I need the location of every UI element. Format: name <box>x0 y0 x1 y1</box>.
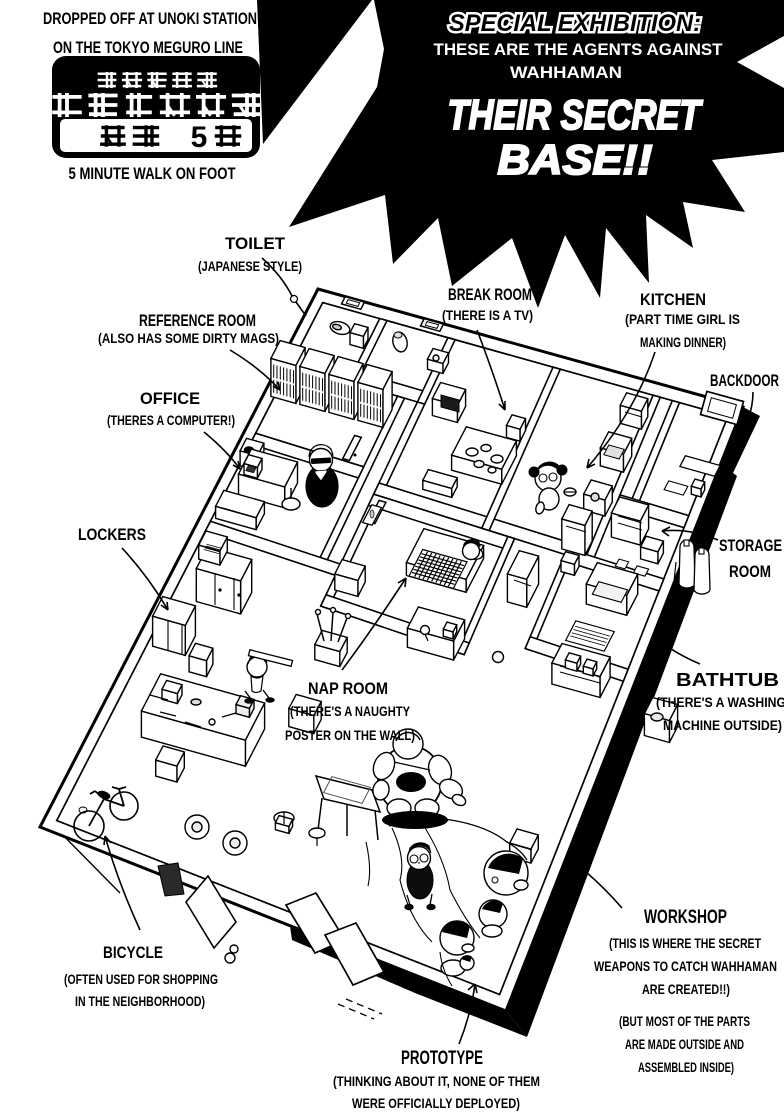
svg-text:(THERES A COMPUTER!): (THERES A COMPUTER!) <box>107 412 235 428</box>
svg-text:WORKSHOP: WORKSHOP <box>644 907 727 928</box>
svg-text:WEAPONS TO CATCH WAHHAMAN: WEAPONS TO CATCH WAHHAMAN <box>594 958 777 974</box>
svg-text:THEIR SECRET: THEIR SECRET <box>448 91 704 138</box>
svg-text:BREAK ROOM: BREAK ROOM <box>448 285 532 304</box>
svg-text:ARE CREATED!!): ARE CREATED!!) <box>642 981 730 997</box>
svg-text:ASSEMBLED INSIDE): ASSEMBLED INSIDE) <box>638 1059 734 1075</box>
svg-text:(THERE IS A TV): (THERE IS A TV) <box>442 307 533 323</box>
svg-text:5 MINUTE WALK ON FOOT: 5 MINUTE WALK ON FOOT <box>69 165 236 183</box>
svg-text:BASE!!: BASE!! <box>498 136 653 183</box>
svg-text:(ALSO HAS SOME DIRTY MAGS): (ALSO HAS SOME DIRTY MAGS) <box>98 330 279 346</box>
svg-text:(OFTEN USED FOR SHOPPING: (OFTEN USED FOR SHOPPING <box>64 971 218 987</box>
svg-text:WERE OFFICIALLY DEPLOYED): WERE OFFICIALLY DEPLOYED) <box>352 1095 520 1111</box>
svg-text:ARE MADE OUTSIDE AND: ARE MADE OUTSIDE AND <box>625 1036 744 1052</box>
svg-text:SPECIAL EXHIBITION:: SPECIAL EXHIBITION: <box>449 10 701 37</box>
svg-text:NAP ROOM: NAP ROOM <box>308 679 388 698</box>
svg-text:(THERE'S A NAUGHTY: (THERE'S A NAUGHTY <box>290 703 411 719</box>
svg-text:BATHTUB: BATHTUB <box>676 670 779 690</box>
svg-text:POSTER ON THE WALL): POSTER ON THE WALL) <box>285 727 415 743</box>
svg-text:(THERE'S A WASHING: (THERE'S A WASHING <box>656 694 784 710</box>
svg-text:OFFICE: OFFICE <box>140 389 200 408</box>
svg-text:(BUT MOST OF THE PARTS: (BUT MOST OF THE PARTS <box>619 1013 750 1029</box>
svg-text:PROTOTYPE: PROTOTYPE <box>401 1048 483 1069</box>
svg-text:ROOM: ROOM <box>729 562 771 581</box>
svg-text:MACHINE OUTSIDE): MACHINE OUTSIDE) <box>663 717 782 733</box>
svg-text:MAKING DINNER): MAKING DINNER) <box>640 334 726 350</box>
svg-text:BACKDOOR: BACKDOOR <box>710 371 779 390</box>
svg-text:TOILET: TOILET <box>225 234 286 253</box>
svg-text:(THIS IS WHERE THE SECRET: (THIS IS WHERE THE SECRET <box>609 935 761 951</box>
svg-text:IN THE NEIGHBORHOOD): IN THE NEIGHBORHOOD) <box>75 993 205 1009</box>
svg-text:WAHHAMAN: WAHHAMAN <box>510 63 622 82</box>
svg-text:KITCHEN: KITCHEN <box>640 290 706 309</box>
svg-text:(THINKING ABOUT IT, NONE OF TH: (THINKING ABOUT IT, NONE OF THEM <box>333 1073 540 1089</box>
svg-text:DROPPED OFF AT UNOKI STATION: DROPPED OFF AT UNOKI STATION <box>43 10 257 28</box>
svg-text:BICYCLE: BICYCLE <box>103 943 163 962</box>
svg-text:LOCKERS: LOCKERS <box>78 525 146 544</box>
svg-text:ON THE TOKYO MEGURO LINE: ON THE TOKYO MEGURO LINE <box>53 39 243 57</box>
svg-text:5: 5 <box>191 121 208 154</box>
svg-text:THESE ARE THE AGENTS AGAINST: THESE ARE THE AGENTS AGAINST <box>434 40 724 59</box>
svg-text:STORAGE: STORAGE <box>719 536 782 555</box>
svg-text:(PART TIME GIRL IS: (PART TIME GIRL IS <box>625 311 740 327</box>
svg-text:(JAPANESE STYLE): (JAPANESE STYLE) <box>198 258 302 274</box>
svg-text:REFERENCE ROOM: REFERENCE ROOM <box>139 311 256 330</box>
